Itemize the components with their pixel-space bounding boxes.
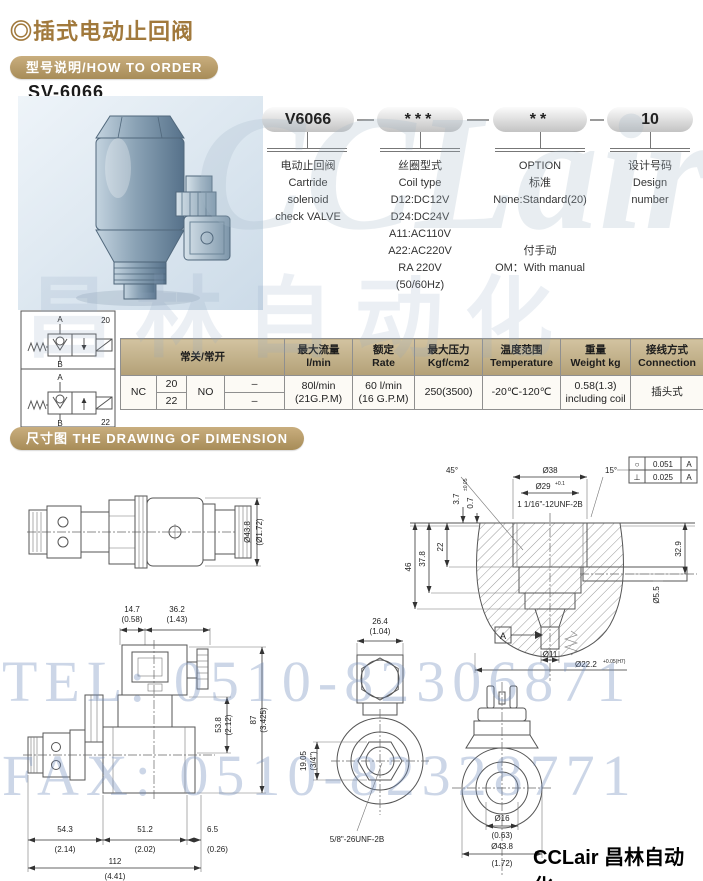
- page-title: ◎插式电动止回阀: [10, 14, 194, 46]
- end-view-geometry: [331, 655, 429, 815]
- dim-dia43-8-coil: Ø43.8: [491, 842, 513, 851]
- code-segment-model: V6066: [262, 107, 354, 132]
- dim-dia16: Ø16: [494, 814, 510, 823]
- drawing-end-view: 26.4 (1.04) 19.05 (3/4") 5/8"-26UNF-2B: [295, 615, 440, 855]
- dim-51-2-in: (2.02): [135, 845, 156, 854]
- fcf-datum-2: A: [686, 473, 692, 482]
- dim-87: 87: [249, 715, 258, 724]
- datum-a-label: A: [500, 631, 506, 641]
- port-b-label: B: [57, 360, 62, 369]
- dim-3-7: 3.7: [452, 493, 461, 505]
- dim-0-7-tol: ±0.05: [463, 478, 469, 491]
- dim-87-in: (3.425): [259, 707, 268, 733]
- dim-dia29-tol: +0.1: [555, 481, 565, 487]
- valve-photo-illustration: [18, 96, 263, 310]
- cell-nc-20: 20: [157, 376, 187, 393]
- end-view-dims: 19.05 (3/4") 5/8"-26UNF-2B: [299, 742, 384, 844]
- section-header-dimension: 尺寸图 THE DRAWING OF DIMENSION: [10, 427, 304, 450]
- section-header-how-to-order: 型号说明/HOW TO ORDER: [10, 56, 218, 79]
- code-connector-dash: [590, 119, 604, 121]
- cell-no-dash-top: –: [225, 376, 285, 393]
- fcf-tol-2: 0.025: [653, 473, 674, 482]
- product-photo: [18, 96, 263, 310]
- cell-weight: 0.58(1.3) including coil: [561, 376, 631, 410]
- side-view-geometry: [23, 640, 215, 800]
- dim-thread-stem: 5/8"-26UNF-2B: [330, 835, 384, 844]
- code-desc-design: 设计号码 Design number: [575, 158, 703, 209]
- dim-32-9: 32.9: [674, 541, 683, 557]
- dim-36-2-in: (1.43): [167, 615, 188, 624]
- symbol-no-22: A B 22: [28, 373, 112, 428]
- dim-angle-45: 45°: [446, 466, 458, 475]
- col-header-nc-no: 常关/常开: [121, 339, 285, 376]
- dim-dia16-in: (0.63): [492, 831, 513, 840]
- drawing-side-view: 14.7 (0.58) 36.2 (1.43): [15, 600, 280, 881]
- dim-36-2: 36.2: [169, 605, 185, 614]
- cell-connection: 插头式: [631, 376, 703, 410]
- dim-angle-15: 15°: [605, 466, 617, 475]
- fcf-symbol-roundness: ○: [635, 460, 640, 469]
- drawing-cavity-section: 45° Ø38 15° Ø29 +0.1 1 1/16"-12UNF-2B 46…: [395, 455, 703, 685]
- col-header-pressure: 最大压力 Kgf/cm2: [415, 339, 483, 376]
- fcf-symbol-perpendicularity: ⊥: [634, 473, 641, 482]
- code-segment-coil: ***: [377, 107, 463, 132]
- side-view-right-dims: 53.8 (2.12) 87 (3.425): [189, 647, 268, 793]
- spec-table: 常关/常开 最大流量 l/min 额定 Rate 最大压力 Kgf/cm2 温度…: [120, 338, 703, 410]
- port-a-label: A: [57, 373, 63, 382]
- dim-53-8: 53.8: [214, 717, 223, 733]
- hydraulic-symbol-box: 20 A B A B: [20, 310, 116, 428]
- code-leader: [420, 132, 421, 148]
- dim-0-7: 0.7: [466, 497, 475, 509]
- code-underline: [380, 148, 460, 152]
- fcf-tol-1: 0.051: [653, 460, 674, 469]
- dim-dia38: Ø38: [542, 466, 558, 475]
- dim-dia29: Ø29: [535, 482, 551, 491]
- dim-dia43-8: Ø43.8: [243, 521, 252, 543]
- code-connector-dash: [357, 119, 374, 121]
- dim-dia43-8-coil-in: (1.72): [492, 859, 513, 868]
- dim-54-3: 54.3: [57, 825, 73, 834]
- code-segment-design: 10: [607, 107, 693, 132]
- dim-dia5-5: Ø5.5: [652, 586, 661, 604]
- cell-no-dash-bottom: –: [225, 393, 285, 410]
- dim-dia22-2: Ø22.2: [575, 660, 597, 669]
- dim-54-3-in: (2.14): [55, 845, 76, 854]
- code-leader: [650, 132, 651, 148]
- dim-6-5-in: (0.26): [207, 845, 228, 854]
- symbol-frame: [21, 311, 115, 427]
- port-a-label: A: [57, 315, 63, 324]
- side-view-bottom-dims: 54.3 (2.14) 51.2 (2.02) 6.5 (0.26) 112 (…: [28, 775, 228, 881]
- valve-profile-geometry: [27, 496, 251, 568]
- cell-nc: NC: [121, 376, 157, 410]
- col-header-flow: 最大流量 l/min: [285, 339, 353, 376]
- side-view-top-dims: 14.7 (0.58) 36.2 (1.43): [120, 605, 210, 645]
- cell-nc-22: 22: [157, 393, 187, 410]
- dim-19-05: 19.05: [299, 750, 308, 771]
- code-underline: [610, 148, 690, 152]
- dim-46: 46: [404, 562, 413, 571]
- footer-brand-logo: CCLair 昌林自动化: [533, 841, 703, 881]
- col-header-rate: 额定 Rate: [353, 339, 415, 376]
- cell-temp: -20℃-120℃: [483, 376, 561, 410]
- datasheet-page: ◎插式电动止回阀 型号说明/HOW TO ORDER SV-6066: [0, 0, 703, 881]
- code-underline: [495, 148, 585, 152]
- dim-dia43-8-in: (Ø1.72): [255, 518, 264, 545]
- code-leader: [540, 132, 541, 148]
- dim-6-5: 6.5: [207, 825, 219, 834]
- cell-rate: 60 l/min (16 G.P.M): [353, 376, 415, 410]
- dim-112: 112: [109, 857, 122, 866]
- code-segment-option: **: [493, 107, 587, 132]
- end-view-top-dim: 26.4 (1.04): [357, 617, 403, 655]
- dim-22: 22: [436, 542, 445, 551]
- code-leader: [307, 132, 308, 148]
- dim-26-4: 26.4: [372, 617, 388, 626]
- dim-19-05-in: (3/4"): [309, 751, 318, 771]
- dim-thread-cavity: 1 1/16"-12UNF-2B: [517, 500, 583, 509]
- symbol-label-22: 22: [101, 418, 110, 427]
- col-header-weight: 重量 Weight kg: [561, 339, 631, 376]
- code-underline: [267, 148, 347, 152]
- dim-112-in: (4.41): [105, 872, 126, 881]
- cell-pressure: 250(3500): [415, 376, 483, 410]
- dim-dia22-2-tol: +0.05(H7): [603, 659, 626, 665]
- symbol-label-20: 20: [101, 316, 110, 325]
- fcf-datum-1: A: [686, 460, 692, 469]
- dim-53-8-in: (2.12): [224, 714, 233, 735]
- dim-dia11: Ø11: [543, 650, 558, 659]
- cell-flow: 80l/min (21G.P.M): [285, 376, 353, 410]
- dim-14-7-in: (0.58): [122, 615, 143, 624]
- code-connector-dash: [467, 119, 489, 121]
- drawing-valve-profile: Ø43.8 (Ø1.72): [25, 470, 265, 595]
- cell-no: NO: [187, 376, 225, 410]
- col-header-temp: 温度范围 Temperature: [483, 339, 561, 376]
- dim-26-4-in: (1.04): [370, 627, 391, 636]
- dim-51-2: 51.2: [137, 825, 153, 834]
- col-header-connection: 接线方式 Connection: [631, 339, 703, 376]
- feature-control-frame: ○ 0.051 A ⊥ 0.025 A: [617, 457, 697, 483]
- dim-14-7: 14.7: [124, 605, 140, 614]
- dim-37-8: 37.8: [418, 551, 427, 567]
- symbol-nc-20: 20 A B: [28, 315, 112, 369]
